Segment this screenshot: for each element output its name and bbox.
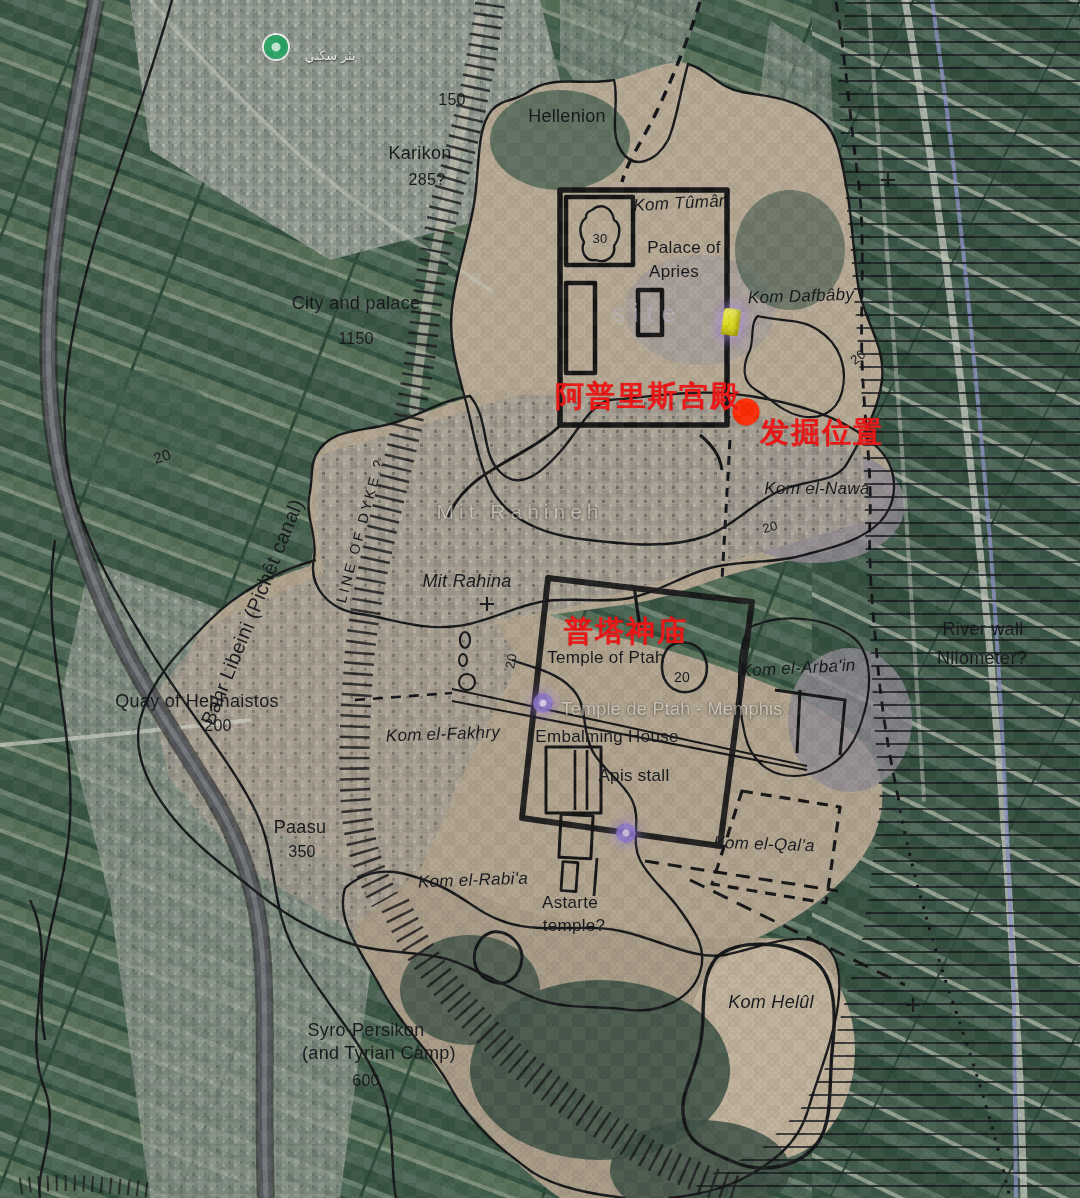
label-nilometer: Nilometer? [937,649,1027,667]
label-city-and-palace: City and palace [292,294,421,312]
label-kom-dafbaby: Kom Dafbâby [748,286,855,307]
label-mit-rahineh-faded: Mit Rahineh [436,501,603,522]
purple-poi-marker-south [616,823,636,843]
label-mit-rahina: Mit Rahina [422,572,511,590]
annotation-ptah-temple-cn: 普塔神庙 [564,617,688,646]
label-temple-of-ptah: Temple of Ptah [547,649,665,666]
label-kom-elfakhry: Kom el-Fakhry [386,724,501,745]
memphis-excavation-map: Bahr Libeini (Pichêt canal) بئر سكني 150… [0,0,1080,1198]
label-river-wall: River wall [942,620,1023,638]
label-quay-area: 200 [204,718,232,734]
label-paasu-area: 350 [288,844,316,860]
label-karikon: Karikon [388,144,451,162]
green-poi-marker [264,35,288,59]
label-kom-helul: Kom Helûl [728,993,814,1011]
label-kom-elqala: Kom el-Qal'a [713,834,815,855]
label-tyrian-camp: (and Tyrian Camp) [302,1044,456,1062]
map-graphics [0,0,1080,1198]
label-apries: Apries [649,263,699,280]
label-arabic-poi: بئر سكني [304,49,355,62]
purple-poi-marker-temple [533,693,553,713]
label-gmaps-temple-ptah: Temple de Ptah - Memphis [561,700,782,718]
label-astarte-temple: temple? [543,917,606,934]
label-syro-area: 600 [352,1073,380,1089]
label-contour-20-ptah-west: 20 [503,652,518,669]
label-area-150: 150 [438,92,466,108]
label-karikon-area: 285? [409,172,446,188]
label-contour-20-ptah-blob: 20 [674,670,690,684]
label-palace-of: Palace of [647,239,721,256]
label-contour-20-nawa: 20 [761,519,779,535]
label-kom-elrabia: Kom el-Rabi'a [418,870,529,891]
label-mound-30: 30 [592,232,607,245]
label-site-watermark: site [613,301,684,326]
label-astarte: Astarte [542,894,598,911]
label-kom-elnawa: Kom el-Nawa [764,480,869,497]
label-hellenion: Hellenion [528,107,606,125]
annotation-excavation-location-cn: 发掘位置 [760,418,884,447]
label-apis-stall: Apis stall [598,767,669,784]
annotation-apries-palace-cn: 阿普里斯宫殿 [555,382,741,411]
label-quay-of-hephaistos: Quay of Hephaistos [115,692,279,710]
label-embalming-house: Embalming House [535,728,678,745]
label-paasu: Paasu [274,818,327,836]
label-syro-persikon: Syro-Persikon [308,1021,425,1039]
label-kom-tuman: Kom Tûmân [633,192,729,214]
label-city-palace-area: 1150 [338,331,374,347]
